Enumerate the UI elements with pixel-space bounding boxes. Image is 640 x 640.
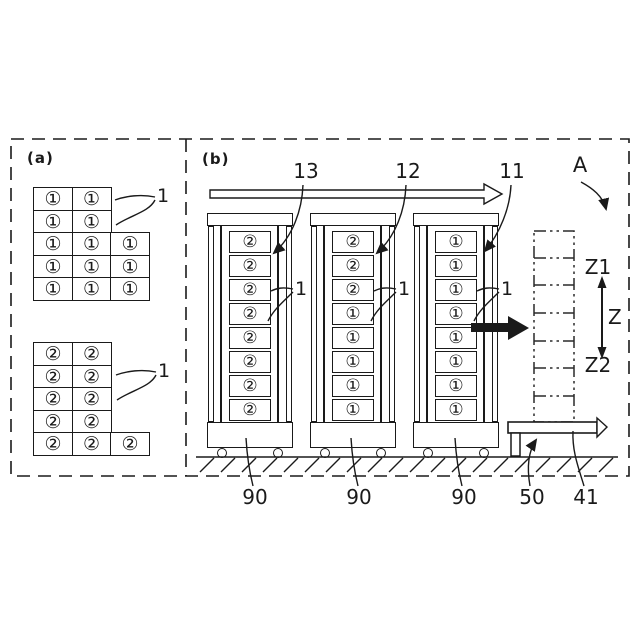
tower-post-outer-left <box>311 226 317 422</box>
stand-leg <box>511 433 520 456</box>
tray-cell: ② <box>332 231 374 253</box>
leader-50 <box>528 440 536 486</box>
z-range-arrow <box>598 276 607 359</box>
ref-label-41: 41 <box>573 487 598 508</box>
tray-cell: ① <box>72 210 112 234</box>
tray-cell: ② <box>229 255 271 277</box>
ref-label-11: 11 <box>499 161 524 182</box>
panel-b-label: (b) <box>202 152 229 168</box>
ref-label-Z2: Z2 <box>585 355 611 376</box>
tower-post-outer-right <box>492 226 498 422</box>
tray-grid-row: ① ① ① <box>33 277 150 301</box>
ref-label-1-grid2: 1 <box>158 362 170 382</box>
tray-grid-type1: ① ① ① ① ① ① ① ① ① ① ① ① ① <box>33 187 150 301</box>
tray-cell: ① <box>33 277 73 301</box>
tray-cell: ① <box>110 277 150 301</box>
tray-cell: ① <box>435 303 477 325</box>
tower-base <box>207 422 293 448</box>
tower-cap <box>310 213 396 226</box>
ref-label-1-tower2: 1 <box>398 280 410 300</box>
ref-label-50: 50 <box>519 487 544 508</box>
ref-label-1-tower3: 1 <box>501 280 513 300</box>
tray-cell: ① <box>435 255 477 277</box>
tray-grid-row: ① ① <box>33 187 150 211</box>
tray-grid-row: ① ① ① <box>33 255 150 279</box>
tray-cell: ② <box>72 365 112 389</box>
tray-cell: ① <box>72 277 112 301</box>
stand-top-rail <box>508 422 597 433</box>
tray-cell: ② <box>72 387 112 411</box>
tray-cell: ② <box>229 327 271 349</box>
tower-post-inner-left <box>426 226 428 422</box>
tray-cell: ① <box>33 210 73 234</box>
tray-cell: ① <box>435 351 477 373</box>
tray-cell: ① <box>33 187 73 211</box>
ref-label-Z1: Z1 <box>585 257 611 278</box>
tray-cell: ① <box>33 232 73 256</box>
caster-wheel <box>423 448 433 458</box>
tower-post-inner-left <box>220 226 222 422</box>
tray-cell: ① <box>332 375 374 397</box>
ref-label-Z: Z <box>608 307 622 328</box>
tower-post-outer-left <box>414 226 420 422</box>
tray-cell: ② <box>33 410 73 434</box>
tray-cell: ② <box>110 432 150 456</box>
tray-cell: ① <box>72 255 112 279</box>
tray-cell: ② <box>72 410 112 434</box>
tray-grid-row: ② ② ② <box>33 432 150 456</box>
tray-cell: ② <box>229 375 271 397</box>
tray-cell: ② <box>229 303 271 325</box>
tray-grid-row: ② ② <box>33 365 150 389</box>
tray-grid-type2: ② ② ② ② ② ② ② ② ② ② ② <box>33 342 150 456</box>
rack-tower-11: ① ① ① ① ① ① ① ① <box>413 213 499 463</box>
tray-cell: ② <box>33 342 73 366</box>
ref-label-13: 13 <box>293 161 318 182</box>
tower-post-outer-left <box>208 226 214 422</box>
rack-tower-12: ② ② ② ① ① ① ① ① <box>310 213 396 463</box>
tray-cell: ① <box>332 327 374 349</box>
caster-wheel <box>320 448 330 458</box>
caster-wheel <box>273 448 283 458</box>
patent-figure: ① ① ① ① ① ① ① ① ① ① ① ① ① ② ② ② ② <box>0 0 640 640</box>
tower-post-inner-right <box>277 226 279 422</box>
tray-cell: ② <box>72 432 112 456</box>
tower-post-inner-right <box>380 226 382 422</box>
tower-post-outer-right <box>286 226 292 422</box>
ref-label-12: 12 <box>395 161 420 182</box>
tower-cap <box>413 213 499 226</box>
transfer-stand <box>508 418 607 456</box>
tower-base <box>413 422 499 448</box>
tray-cell: ② <box>72 342 112 366</box>
tray-cell: ① <box>435 375 477 397</box>
tray-cell: ① <box>435 327 477 349</box>
tower-base <box>310 422 396 448</box>
tower-post-inner-left <box>323 226 325 422</box>
tray-cell: ② <box>229 399 271 421</box>
tray-cell: ② <box>33 365 73 389</box>
tray-cell: ② <box>229 231 271 253</box>
tower-cap <box>207 213 293 226</box>
tray-cell: ② <box>33 432 73 456</box>
ref-label-90-3: 90 <box>451 487 476 508</box>
ref-label-90-1: 90 <box>242 487 267 508</box>
tray-cell: ② <box>33 387 73 411</box>
tray-cell: ① <box>110 255 150 279</box>
tray-cell: ① <box>33 255 73 279</box>
caster-wheel <box>479 448 489 458</box>
phantom-stack-outline <box>534 231 574 422</box>
panel-a-label: (a) <box>27 151 54 167</box>
tray-grid-row: ① ① <box>33 210 150 234</box>
tray-cell: ① <box>332 351 374 373</box>
ref-label-90-2: 90 <box>346 487 371 508</box>
tray-cell: ① <box>110 232 150 256</box>
tray-cell: ① <box>435 279 477 301</box>
tray-cell: ① <box>72 232 112 256</box>
tower-post-outer-right <box>389 226 395 422</box>
phantom-stack-shelves <box>534 258 574 396</box>
caster-wheel <box>376 448 386 458</box>
tray-grid-row: ① ① ① <box>33 232 150 256</box>
tray-cell: ② <box>229 279 271 301</box>
tray-cell: ① <box>332 303 374 325</box>
ref-label-1-tower1: 1 <box>295 280 307 300</box>
rack-tower-13: ② ② ② ② ② ② ② ② <box>207 213 293 463</box>
tray-cell: ① <box>435 399 477 421</box>
stand-rail-tip <box>597 418 607 437</box>
tray-grid-row: ② ② <box>33 410 150 434</box>
tray-cell: ① <box>435 231 477 253</box>
ref-label-A: A <box>573 154 587 176</box>
caster-wheel <box>217 448 227 458</box>
leader-A <box>581 182 606 209</box>
tray-grid-row: ② ② <box>33 342 150 366</box>
leader-41 <box>573 431 584 486</box>
tray-grid-row: ② ② <box>33 387 150 411</box>
conveyance-direction-arrow <box>210 184 502 204</box>
tower-post-inner-right <box>483 226 485 422</box>
tray-cell: ② <box>332 279 374 301</box>
ref-label-1-grid1: 1 <box>157 187 169 207</box>
tray-cell: ① <box>72 187 112 211</box>
tray-cell: ② <box>332 255 374 277</box>
tray-cell: ① <box>332 399 374 421</box>
tray-cell: ② <box>229 351 271 373</box>
